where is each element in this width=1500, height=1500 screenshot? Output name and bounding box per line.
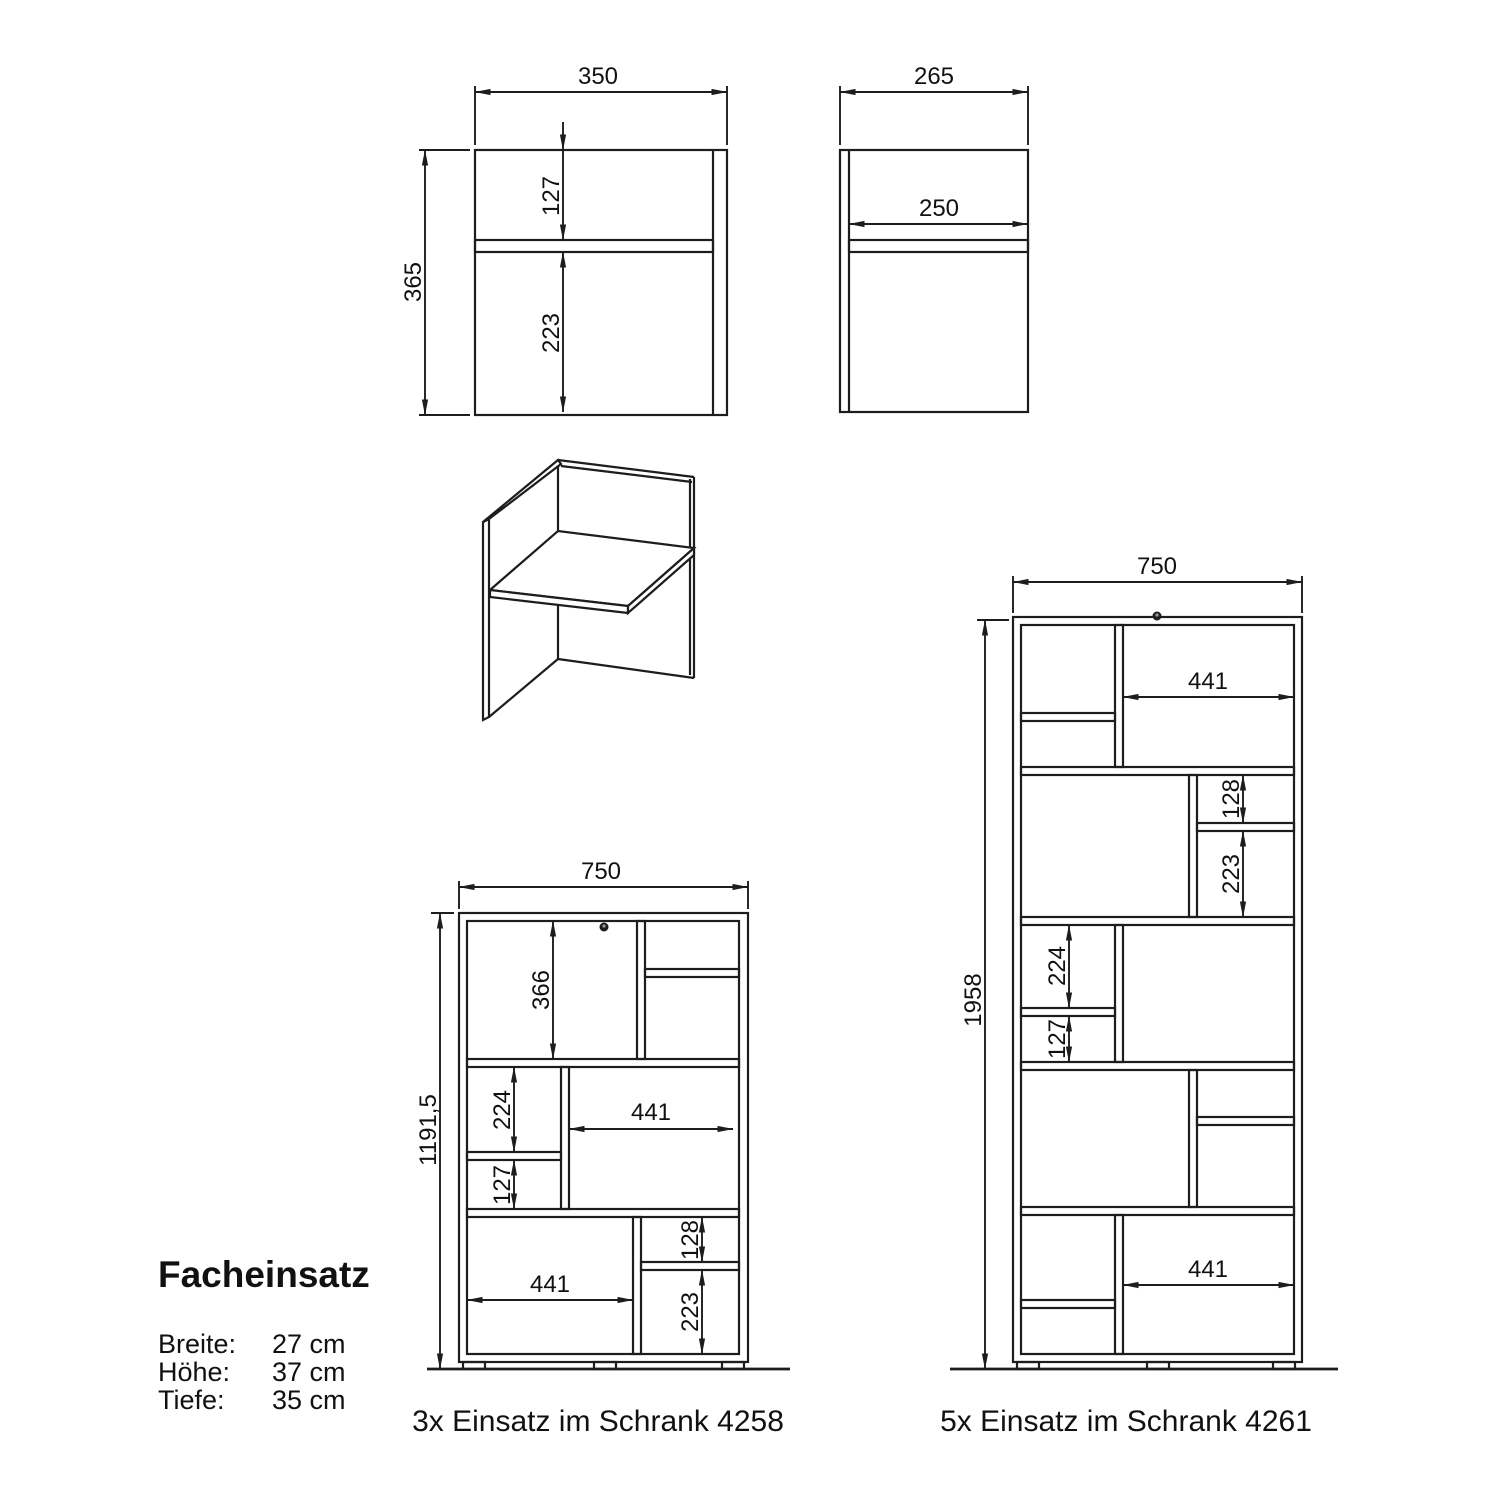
dim-4261-128: 128 (1218, 779, 1245, 819)
spec-label-hoehe: Höhe: (158, 1357, 230, 1387)
dim-front-width: 350 (578, 63, 618, 90)
dim-4258-127: 127 (489, 1165, 516, 1205)
cabinet-4258-drawing: 750 1191,5 366 224 127 441 441 128 223 3… (412, 858, 790, 1438)
dim-4258-223: 223 (677, 1292, 704, 1332)
cabinet-outline (459, 913, 748, 1362)
dim-front-top: 127 (538, 176, 565, 216)
dim-4261-height: 1958 (960, 973, 987, 1026)
dim-4258-width: 750 (581, 858, 621, 885)
drawing-canvas: 350 365 127 223 265 250 (0, 0, 1500, 1500)
side-panel-top-edge (483, 460, 561, 522)
dim-4258-366: 366 (528, 970, 555, 1010)
dim-4261-223: 223 (1218, 854, 1245, 894)
dim-4258-224: 224 (489, 1090, 516, 1130)
side-shelf (849, 240, 1028, 252)
dim-front-bottom: 223 (538, 313, 565, 353)
dim-4261-width: 750 (1137, 553, 1177, 580)
cabinet-inner (1021, 625, 1294, 1354)
spec-block: Facheinsatz Breite: 27 cm Höhe: 37 cm Ti… (158, 1254, 370, 1415)
dim-4258-441-mid: 441 (631, 1099, 671, 1126)
cabinet-inner (467, 921, 739, 1354)
dim-4261-441-top: 441 (1188, 668, 1228, 695)
page-title: Facheinsatz (158, 1254, 370, 1295)
dim-side-shelf-depth: 250 (919, 195, 959, 222)
cabinet-4261-drawing: 750 1958 441 128 223 224 127 441 5x Eins… (940, 553, 1338, 1438)
caption-4261: 5x Einsatz im Schrank 4261 (940, 1405, 1312, 1438)
dim-4261-127: 127 (1044, 1019, 1071, 1059)
front-outline (475, 150, 727, 415)
cabinet-outline (1013, 617, 1302, 1362)
dim-side-depth: 265 (914, 63, 954, 90)
side-panel-front-edge (483, 519, 489, 720)
spec-value-breite: 27 cm (272, 1329, 346, 1359)
dim-4258-height: 1191,5 (415, 1094, 442, 1166)
perspective-view (483, 460, 694, 720)
dim-4258-128: 128 (677, 1220, 704, 1260)
dim-front-height: 365 (400, 262, 427, 302)
technical-drawing-page: 350 365 127 223 265 250 (0, 0, 1500, 1500)
spec-value-tiefe: 35 cm (272, 1385, 346, 1415)
dim-4261-441-bottom: 441 (1188, 1256, 1228, 1283)
dim-4261-224: 224 (1044, 946, 1071, 986)
spec-label-breite: Breite: (158, 1329, 236, 1359)
dim-4258-441-bottom: 441 (530, 1271, 570, 1298)
front-shelf (475, 240, 713, 252)
side-outline (840, 150, 1028, 412)
spec-value-hoehe: 37 cm (272, 1357, 346, 1387)
spec-label-tiefe: Tiefe: (158, 1385, 225, 1415)
side-view: 265 250 (840, 63, 1028, 412)
front-view: 350 365 127 223 (400, 63, 727, 415)
caption-4258: 3x Einsatz im Schrank 4258 (412, 1405, 784, 1438)
